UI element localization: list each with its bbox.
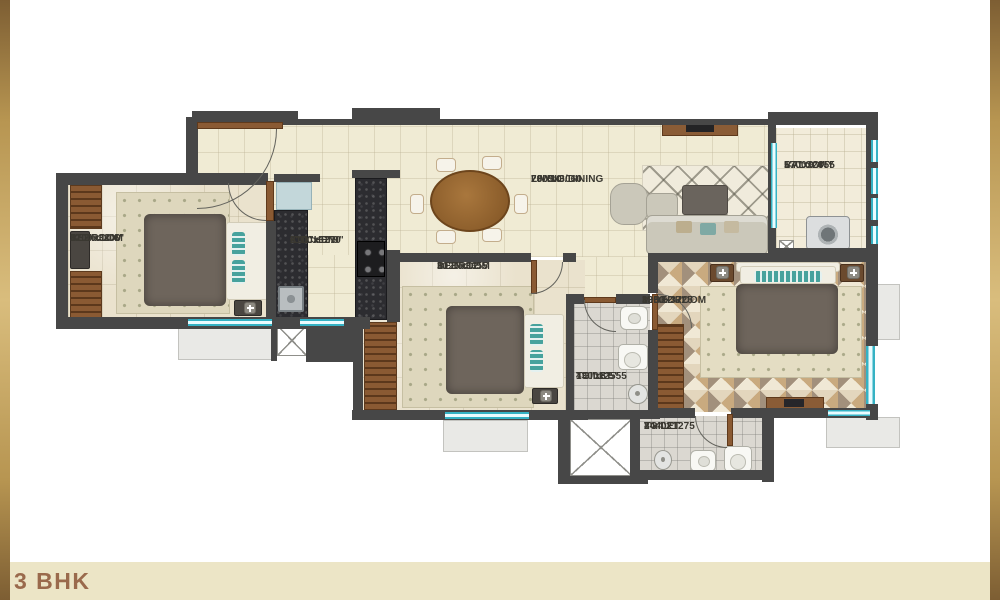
shower xyxy=(628,384,648,404)
wardrobe xyxy=(654,324,684,412)
window xyxy=(300,319,344,326)
bedside-lamp-icon xyxy=(716,266,729,279)
wall xyxy=(648,253,658,293)
frame-right xyxy=(990,0,1000,600)
wall xyxy=(648,330,658,415)
pillow xyxy=(232,232,245,256)
shower xyxy=(654,450,672,470)
wall xyxy=(566,294,574,420)
room-size-ft: 6'11"x10'9" xyxy=(290,235,344,248)
wall xyxy=(271,323,277,361)
wall xyxy=(648,408,695,418)
bed-blanket xyxy=(144,214,226,306)
window xyxy=(871,168,878,194)
wall xyxy=(352,170,400,178)
gas-stove xyxy=(357,241,385,277)
plan-title: 3 BHK xyxy=(14,568,91,595)
bedroom-1-door xyxy=(266,181,274,221)
tv-screen xyxy=(686,125,714,132)
dining-chair xyxy=(436,158,456,172)
room-size-ft: 13'x12'3" xyxy=(642,295,686,308)
toilet-seat xyxy=(724,446,752,472)
dining-chair xyxy=(436,230,456,244)
room-size-ft: 10'3"x12' xyxy=(437,261,481,274)
wall xyxy=(352,108,440,119)
wall xyxy=(563,253,576,262)
washbasin xyxy=(620,306,648,330)
dining-chair xyxy=(410,194,424,214)
window xyxy=(828,410,870,416)
bed-blanket xyxy=(446,306,524,394)
sofa-cushion xyxy=(676,221,692,233)
wardrobe xyxy=(70,185,102,229)
window xyxy=(871,140,878,162)
wardrobe xyxy=(70,271,102,321)
pillow xyxy=(530,324,543,346)
bed-blanket xyxy=(736,284,838,354)
room-size-ft: 4'3"x8'5" xyxy=(576,371,619,384)
dining-chair xyxy=(482,228,502,242)
window xyxy=(771,143,777,228)
room-size-ft: 5'7"x9'4" xyxy=(784,160,827,173)
armchair xyxy=(610,183,648,225)
bedside-lamp-icon xyxy=(244,302,256,314)
dining-table xyxy=(430,170,510,232)
frame-left xyxy=(0,0,10,600)
dining-chair xyxy=(482,156,502,170)
wall xyxy=(648,253,878,262)
room-size-ft: 8'x4'2" xyxy=(644,421,676,434)
room-size-ft: 12'2"x10'6" xyxy=(70,233,124,246)
sofa-cushion xyxy=(700,223,716,235)
wall xyxy=(274,174,320,182)
window xyxy=(871,198,878,220)
ledge-right-strip xyxy=(876,284,900,340)
dining-chair xyxy=(514,194,528,214)
wardrobe xyxy=(364,322,397,412)
floor-plan-canvas: BEDROOM 3700x3200 12'2"x10'6" KITCHEN 21… xyxy=(0,0,1000,600)
duct-shaft xyxy=(570,419,632,476)
window xyxy=(188,319,272,326)
bedside-lamp-icon xyxy=(540,390,552,402)
window xyxy=(866,346,875,404)
wall xyxy=(353,320,363,417)
coffee-table xyxy=(682,185,728,215)
kitchen-floor xyxy=(308,255,355,320)
room-size-ft: 23'x10' xyxy=(531,174,564,187)
washbasin xyxy=(690,450,716,472)
wall xyxy=(866,256,878,346)
entrance-door xyxy=(197,122,283,129)
kitchen-platform xyxy=(276,182,312,210)
kitchen-sink xyxy=(278,286,304,312)
bottom-band: 3 BHK xyxy=(0,562,1000,600)
bedside-lamp-icon xyxy=(847,266,860,279)
window xyxy=(445,412,529,419)
bed-runner xyxy=(754,271,822,282)
wall xyxy=(630,470,774,480)
ledge-below-bedroom-2 xyxy=(443,420,528,452)
dresser-tv xyxy=(784,399,804,407)
wall xyxy=(266,221,276,327)
wall xyxy=(560,410,660,419)
pillow xyxy=(530,350,543,372)
sofa-cushion xyxy=(724,221,739,233)
wall xyxy=(56,173,68,327)
wall xyxy=(558,412,570,484)
pillow xyxy=(232,260,245,284)
toilet-2-door xyxy=(727,414,733,446)
wall xyxy=(768,112,878,125)
sofa xyxy=(646,215,768,255)
wall xyxy=(630,412,640,478)
washing-machine xyxy=(806,216,850,250)
toilet-seat xyxy=(618,344,648,370)
window xyxy=(871,226,878,244)
ledge-below-bedroom-1 xyxy=(178,327,274,360)
kitchen-duct xyxy=(277,325,307,356)
ledge-bottom-right xyxy=(826,417,900,448)
